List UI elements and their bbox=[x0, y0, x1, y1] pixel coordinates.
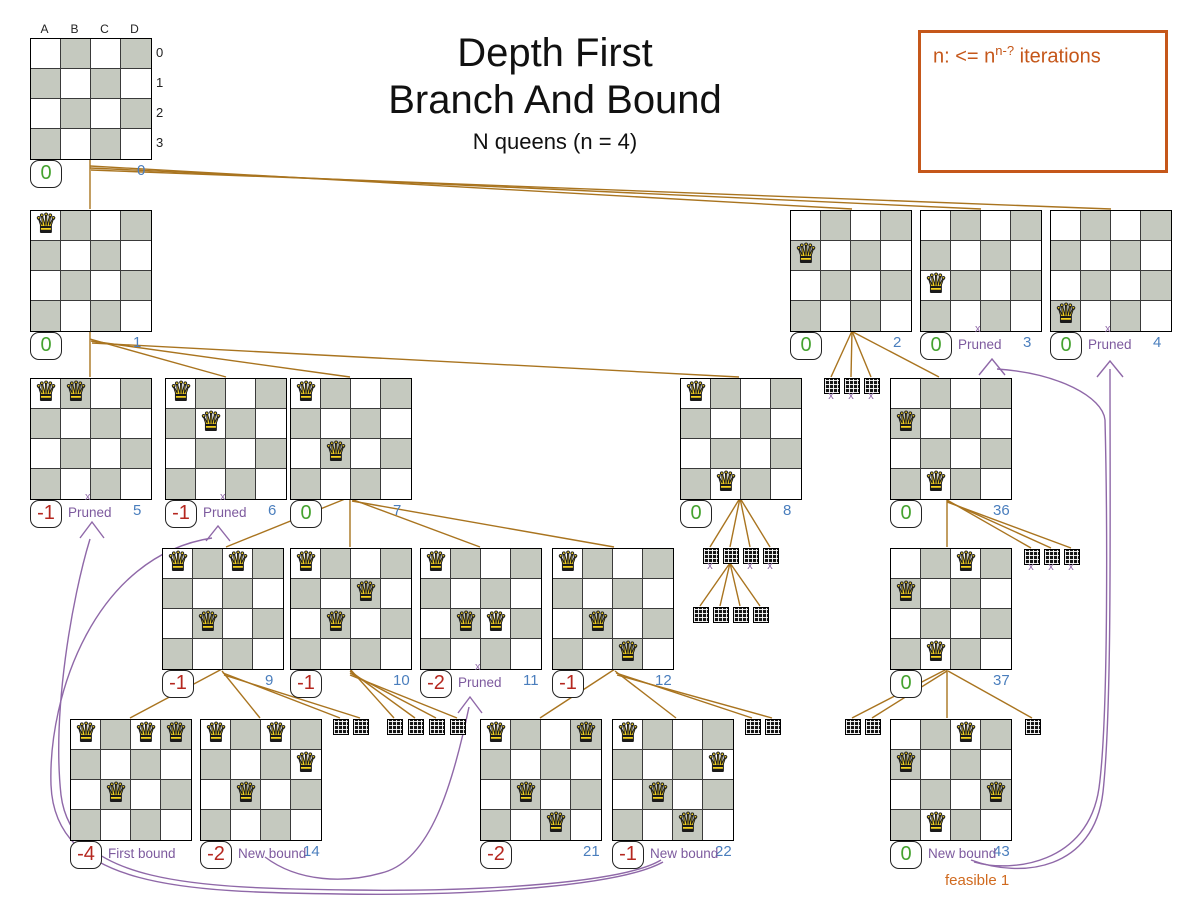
board-cell: ♛ bbox=[451, 609, 481, 639]
chessboard: ♛ bbox=[920, 210, 1042, 332]
iteration-index: 37 bbox=[993, 672, 1010, 689]
board-cell bbox=[643, 720, 673, 750]
board-node-13: ♛♛♛♛-413First bound bbox=[70, 719, 192, 841]
board-cell bbox=[31, 271, 61, 301]
queen-icon: ♛ bbox=[31, 377, 61, 407]
iteration-index: 12 bbox=[655, 672, 672, 689]
iteration-index: 11 bbox=[523, 672, 539, 689]
board-cell bbox=[511, 609, 541, 639]
score-badge: -2 bbox=[480, 841, 512, 869]
queen-icon: ♛ bbox=[201, 718, 231, 748]
board-cell bbox=[256, 439, 286, 469]
board-cell bbox=[981, 810, 1011, 840]
board-cell: ♛ bbox=[643, 780, 673, 810]
iteration-index: 36 bbox=[993, 502, 1010, 519]
board-cell bbox=[921, 780, 951, 810]
board-cell bbox=[351, 409, 381, 439]
row-label: 2 bbox=[156, 105, 163, 120]
board-cell bbox=[421, 579, 451, 609]
board-node-2: ♛02 bbox=[790, 210, 912, 332]
iterations-note-superscript: n-? bbox=[995, 43, 1014, 58]
board-cell bbox=[613, 780, 643, 810]
board-cell bbox=[166, 409, 196, 439]
board-cell bbox=[381, 469, 411, 499]
board-cell: ♛ bbox=[201, 720, 231, 750]
board-cell bbox=[91, 409, 121, 439]
board-cell bbox=[921, 609, 951, 639]
board-cell: ♛ bbox=[351, 579, 381, 609]
mini-prune-x-mark: x bbox=[742, 560, 758, 572]
board-cell bbox=[381, 579, 411, 609]
column-label: D bbox=[120, 22, 150, 36]
board-cell bbox=[481, 810, 511, 840]
queen-icon: ♛ bbox=[481, 718, 511, 748]
board-cell bbox=[1081, 241, 1111, 271]
board-node-5: ♛♛-15Prunedx bbox=[30, 378, 152, 500]
board-cell: ♛ bbox=[511, 780, 541, 810]
board-cell bbox=[921, 379, 951, 409]
board-cell bbox=[121, 301, 151, 331]
node-tag-label: New bound bbox=[238, 846, 306, 861]
mini-board bbox=[1025, 719, 1041, 735]
board-cell bbox=[291, 720, 321, 750]
board-cell bbox=[891, 549, 921, 579]
chessboard: ♛♛ bbox=[680, 378, 802, 500]
board-cell bbox=[613, 549, 643, 579]
board-cell: ♛ bbox=[613, 639, 643, 669]
board-cell: ♛ bbox=[981, 780, 1011, 810]
queen-icon: ♛ bbox=[711, 467, 741, 497]
row-label: 3 bbox=[156, 135, 163, 150]
board-cell bbox=[851, 271, 881, 301]
board-cell bbox=[921, 579, 951, 609]
queen-icon: ♛ bbox=[613, 637, 643, 667]
board-cell bbox=[121, 129, 151, 159]
iteration-index: 10 bbox=[393, 672, 410, 689]
board-cell bbox=[981, 579, 1011, 609]
board-cell bbox=[821, 301, 851, 331]
queen-icon: ♛ bbox=[193, 607, 223, 637]
iteration-index: 3 bbox=[1023, 334, 1031, 351]
board-cell bbox=[673, 780, 703, 810]
column-label: C bbox=[90, 22, 120, 36]
board-cell bbox=[351, 469, 381, 499]
queen-icon: ♛ bbox=[131, 718, 161, 748]
board-cell: ♛ bbox=[571, 720, 601, 750]
node-tag-label: Pruned bbox=[68, 505, 112, 520]
board-cell bbox=[921, 409, 951, 439]
board-cell bbox=[351, 549, 381, 579]
board-cell bbox=[1111, 211, 1141, 241]
board-cell bbox=[703, 720, 733, 750]
score-badge: 0 bbox=[290, 500, 322, 528]
board-cell bbox=[226, 409, 256, 439]
board-cell bbox=[741, 409, 771, 439]
board-cell bbox=[381, 409, 411, 439]
board-cell bbox=[951, 750, 981, 780]
prune-x-mark: x bbox=[1105, 323, 1111, 335]
board-cell bbox=[351, 439, 381, 469]
queen-icon: ♛ bbox=[891, 748, 921, 778]
board-cell bbox=[231, 720, 261, 750]
board-cell bbox=[821, 211, 851, 241]
board-cell bbox=[291, 810, 321, 840]
board-cell bbox=[101, 810, 131, 840]
score-badge: 0 bbox=[790, 332, 822, 360]
board-cell bbox=[951, 639, 981, 669]
mini-board bbox=[765, 719, 781, 735]
board-cell bbox=[1011, 271, 1041, 301]
board-cell bbox=[193, 549, 223, 579]
board-cell bbox=[891, 720, 921, 750]
board-cell bbox=[421, 639, 451, 669]
board-node-14: ♛♛♛♛-214New bound bbox=[200, 719, 322, 841]
board-cell bbox=[511, 579, 541, 609]
board-cell bbox=[981, 409, 1011, 439]
board-cell: ♛ bbox=[481, 609, 511, 639]
queen-icon: ♛ bbox=[791, 239, 821, 269]
board-cell bbox=[121, 409, 151, 439]
board-cell bbox=[891, 379, 921, 409]
board-cell bbox=[951, 810, 981, 840]
queen-icon: ♛ bbox=[1051, 299, 1081, 329]
board-cell bbox=[91, 69, 121, 99]
iterations-note-box: n: <= nn-? iterations bbox=[918, 30, 1168, 173]
board-cell bbox=[951, 379, 981, 409]
board-cell bbox=[1141, 301, 1171, 331]
queen-icon: ♛ bbox=[951, 718, 981, 748]
chessboard: ♛♛♛ bbox=[162, 548, 284, 670]
board-cell bbox=[511, 549, 541, 579]
chessboard: ♛♛♛ bbox=[890, 548, 1012, 670]
board-cell bbox=[163, 639, 193, 669]
board-cell bbox=[256, 469, 286, 499]
board-cell bbox=[201, 780, 231, 810]
chessboard: ♛♛♛ bbox=[420, 548, 542, 670]
queen-icon: ♛ bbox=[291, 377, 321, 407]
board-cell bbox=[381, 639, 411, 669]
board-cell: ♛ bbox=[101, 780, 131, 810]
chessboard: ♛♛ bbox=[165, 378, 287, 500]
board-cell bbox=[921, 211, 951, 241]
mini-board bbox=[753, 607, 769, 623]
board-cell bbox=[951, 211, 981, 241]
chessboard: ♛♛ bbox=[890, 378, 1012, 500]
score-badge: 0 bbox=[30, 332, 62, 360]
queen-icon: ♛ bbox=[321, 437, 351, 467]
mini-board bbox=[723, 548, 739, 564]
iteration-index: 7 bbox=[393, 502, 401, 519]
board-cell bbox=[351, 609, 381, 639]
board-cell bbox=[131, 810, 161, 840]
mini-prune-x-mark: x bbox=[1043, 561, 1059, 573]
column-labels: ABCD bbox=[30, 22, 150, 36]
board-cell: ♛ bbox=[921, 810, 951, 840]
board-cell bbox=[31, 99, 61, 129]
board-cell bbox=[193, 639, 223, 669]
board-cell: ♛ bbox=[673, 810, 703, 840]
mini-board bbox=[693, 607, 709, 623]
board-cell bbox=[226, 379, 256, 409]
board-cell bbox=[541, 780, 571, 810]
mini-prune-x-mark: x bbox=[762, 560, 778, 572]
board-cell bbox=[981, 609, 1011, 639]
board-cell bbox=[1081, 211, 1111, 241]
board-cell bbox=[1051, 211, 1081, 241]
mini-prune-x-mark: x bbox=[823, 390, 839, 402]
board-cell bbox=[321, 549, 351, 579]
board-cell bbox=[481, 549, 511, 579]
chessboard: ♛♛♛♛ bbox=[70, 719, 192, 841]
board-cell bbox=[451, 549, 481, 579]
board-cell bbox=[231, 810, 261, 840]
board-cell bbox=[31, 439, 61, 469]
board-cell bbox=[163, 579, 193, 609]
board-cell bbox=[981, 211, 1011, 241]
prune-x-mark: x bbox=[975, 323, 981, 335]
board-cell bbox=[61, 129, 91, 159]
board-cell bbox=[91, 129, 121, 159]
board-cell bbox=[121, 39, 151, 69]
board-cell bbox=[61, 39, 91, 69]
board-cell: ♛ bbox=[166, 379, 196, 409]
board-cell bbox=[771, 439, 801, 469]
board-cell bbox=[981, 750, 1011, 780]
board-node-43: ♛♛♛♛043New boundfeasible 1 bbox=[890, 719, 1012, 841]
board-cell bbox=[771, 379, 801, 409]
board-cell: ♛ bbox=[131, 720, 161, 750]
board-cell bbox=[31, 469, 61, 499]
queen-icon: ♛ bbox=[481, 607, 511, 637]
iteration-index: 8 bbox=[783, 502, 791, 519]
board-cell bbox=[571, 780, 601, 810]
board-cell bbox=[256, 379, 286, 409]
board-cell bbox=[261, 810, 291, 840]
board-cell bbox=[1111, 301, 1141, 331]
board-cell bbox=[951, 780, 981, 810]
board-cell bbox=[951, 609, 981, 639]
board-cell: ♛ bbox=[891, 750, 921, 780]
chessboard bbox=[30, 38, 152, 160]
board-cell bbox=[196, 379, 226, 409]
board-cell bbox=[381, 609, 411, 639]
queen-icon: ♛ bbox=[553, 547, 583, 577]
board-cell bbox=[1051, 241, 1081, 271]
board-cell bbox=[291, 439, 321, 469]
score-badge: 0 bbox=[30, 160, 62, 188]
board-cell bbox=[851, 301, 881, 331]
queen-icon: ♛ bbox=[613, 718, 643, 748]
queen-icon: ♛ bbox=[71, 718, 101, 748]
board-cell: ♛ bbox=[321, 609, 351, 639]
board-cell bbox=[643, 609, 673, 639]
board-cell bbox=[981, 301, 1011, 331]
board-cell bbox=[201, 810, 231, 840]
queen-icon: ♛ bbox=[451, 607, 481, 637]
board-cell bbox=[951, 271, 981, 301]
board-cell bbox=[613, 609, 643, 639]
board-cell bbox=[1011, 241, 1041, 271]
board-cell: ♛ bbox=[553, 549, 583, 579]
board-cell bbox=[121, 469, 151, 499]
board-cell bbox=[673, 750, 703, 780]
prune-x-mark: x bbox=[85, 491, 91, 503]
board-cell: ♛ bbox=[921, 469, 951, 499]
board-cell bbox=[91, 469, 121, 499]
board-cell bbox=[91, 39, 121, 69]
board-node-4: ♛04Prunedx bbox=[1050, 210, 1172, 332]
mini-prune-x-mark: x bbox=[1023, 561, 1039, 573]
board-node-12: ♛♛♛-112 bbox=[552, 548, 674, 670]
queen-icon: ♛ bbox=[101, 778, 131, 808]
iterations-note-suffix: iterations bbox=[1014, 46, 1101, 68]
board-cell: ♛ bbox=[291, 549, 321, 579]
queen-icon: ♛ bbox=[571, 718, 601, 748]
mini-board bbox=[733, 607, 749, 623]
board-cell bbox=[921, 720, 951, 750]
board-cell bbox=[921, 549, 951, 579]
board-cell bbox=[703, 780, 733, 810]
board-cell bbox=[981, 439, 1011, 469]
board-cell bbox=[791, 271, 821, 301]
board-cell bbox=[741, 439, 771, 469]
mini-prune-x-mark: x bbox=[702, 560, 718, 572]
board-cell bbox=[193, 579, 223, 609]
board-cell bbox=[321, 579, 351, 609]
feasible-label: feasible 1 bbox=[945, 872, 1009, 889]
board-cell bbox=[481, 579, 511, 609]
board-cell: ♛ bbox=[321, 439, 351, 469]
board-cell bbox=[223, 639, 253, 669]
board-cell bbox=[791, 211, 821, 241]
arrowhead-pruned4 bbox=[1097, 361, 1123, 377]
board-cell bbox=[381, 549, 411, 579]
node-tag-label: Pruned bbox=[1088, 337, 1132, 352]
board-cell bbox=[91, 271, 121, 301]
board-cell bbox=[101, 720, 131, 750]
queen-icon: ♛ bbox=[261, 718, 291, 748]
board-cell bbox=[951, 241, 981, 271]
board-cell bbox=[613, 810, 643, 840]
board-cell bbox=[643, 810, 673, 840]
board-cell bbox=[981, 469, 1011, 499]
board-cell bbox=[711, 379, 741, 409]
board-cell bbox=[61, 409, 91, 439]
board-cell bbox=[881, 211, 911, 241]
board-cell bbox=[821, 241, 851, 271]
board-cell bbox=[166, 469, 196, 499]
mini-board bbox=[387, 719, 403, 735]
board-cell bbox=[71, 780, 101, 810]
queen-icon: ♛ bbox=[981, 778, 1011, 808]
board-cell bbox=[31, 129, 61, 159]
board-cell: ♛ bbox=[161, 720, 191, 750]
score-badge: 0 bbox=[890, 500, 922, 528]
board-cell bbox=[891, 780, 921, 810]
diagram-stage: Depth First Branch And Bound N queens (n… bbox=[0, 0, 1200, 900]
column-label: B bbox=[60, 22, 90, 36]
queen-icon: ♛ bbox=[166, 377, 196, 407]
board-cell bbox=[1011, 211, 1041, 241]
iteration-index: 6 bbox=[268, 502, 276, 519]
chessboard: ♛ bbox=[1050, 210, 1172, 332]
chessboard: ♛♛♛♛ bbox=[200, 719, 322, 841]
mini-board bbox=[745, 719, 761, 735]
board-cell bbox=[541, 750, 571, 780]
board-cell bbox=[643, 579, 673, 609]
board-cell: ♛ bbox=[31, 211, 61, 241]
board-cell bbox=[921, 439, 951, 469]
board-cell bbox=[791, 301, 821, 331]
board-cell bbox=[921, 301, 951, 331]
queen-icon: ♛ bbox=[321, 607, 351, 637]
board-node-3: ♛03Prunedx bbox=[920, 210, 1042, 332]
score-badge: -2 bbox=[420, 670, 452, 698]
board-node-7: ♛♛07 bbox=[290, 378, 412, 500]
board-cell: ♛ bbox=[231, 780, 261, 810]
board-cell bbox=[166, 439, 196, 469]
board-node-8: ♛♛08 bbox=[680, 378, 802, 500]
board-cell bbox=[71, 750, 101, 780]
node-tag-label: First bound bbox=[108, 846, 176, 861]
board-cell bbox=[381, 439, 411, 469]
queen-icon: ♛ bbox=[921, 269, 951, 299]
board-cell bbox=[31, 241, 61, 271]
board-cell bbox=[481, 780, 511, 810]
board-cell bbox=[1051, 271, 1081, 301]
queen-icon: ♛ bbox=[196, 407, 226, 437]
board-cell bbox=[161, 810, 191, 840]
board-cell bbox=[613, 750, 643, 780]
board-cell: ♛ bbox=[71, 720, 101, 750]
board-cell bbox=[851, 241, 881, 271]
score-badge: 0 bbox=[890, 670, 922, 698]
queen-icon: ♛ bbox=[31, 209, 61, 239]
score-badge: 0 bbox=[890, 841, 922, 869]
mini-board bbox=[333, 719, 349, 735]
board-cell bbox=[121, 69, 151, 99]
board-cell bbox=[891, 639, 921, 669]
board-cell bbox=[583, 549, 613, 579]
board-cell bbox=[511, 810, 541, 840]
board-cell bbox=[771, 409, 801, 439]
board-cell bbox=[1111, 271, 1141, 301]
board-cell bbox=[643, 750, 673, 780]
title-block: Depth First Branch And Bound N queens (n… bbox=[320, 30, 790, 158]
board-cell bbox=[253, 549, 283, 579]
board-cell bbox=[223, 579, 253, 609]
board-cell: ♛ bbox=[541, 810, 571, 840]
board-cell bbox=[1141, 271, 1171, 301]
chessboard: ♛♛♛♛ bbox=[890, 719, 1012, 841]
board-cell bbox=[1081, 271, 1111, 301]
iteration-index: 9 bbox=[265, 672, 273, 689]
board-cell: ♛ bbox=[163, 549, 193, 579]
board-node-0: ABCD012300 bbox=[30, 38, 152, 160]
board-cell bbox=[291, 639, 321, 669]
board-cell: ♛ bbox=[791, 241, 821, 271]
board-cell: ♛ bbox=[1051, 301, 1081, 331]
board-cell: ♛ bbox=[891, 409, 921, 439]
score-badge: 0 bbox=[1050, 332, 1082, 360]
node-tag-label: New bound bbox=[928, 846, 996, 861]
node-tag-label: Pruned bbox=[203, 505, 247, 520]
queen-icon: ♛ bbox=[643, 778, 673, 808]
board-cell bbox=[121, 241, 151, 271]
board-cell bbox=[223, 609, 253, 639]
board-cell bbox=[121, 439, 151, 469]
board-cell bbox=[571, 810, 601, 840]
